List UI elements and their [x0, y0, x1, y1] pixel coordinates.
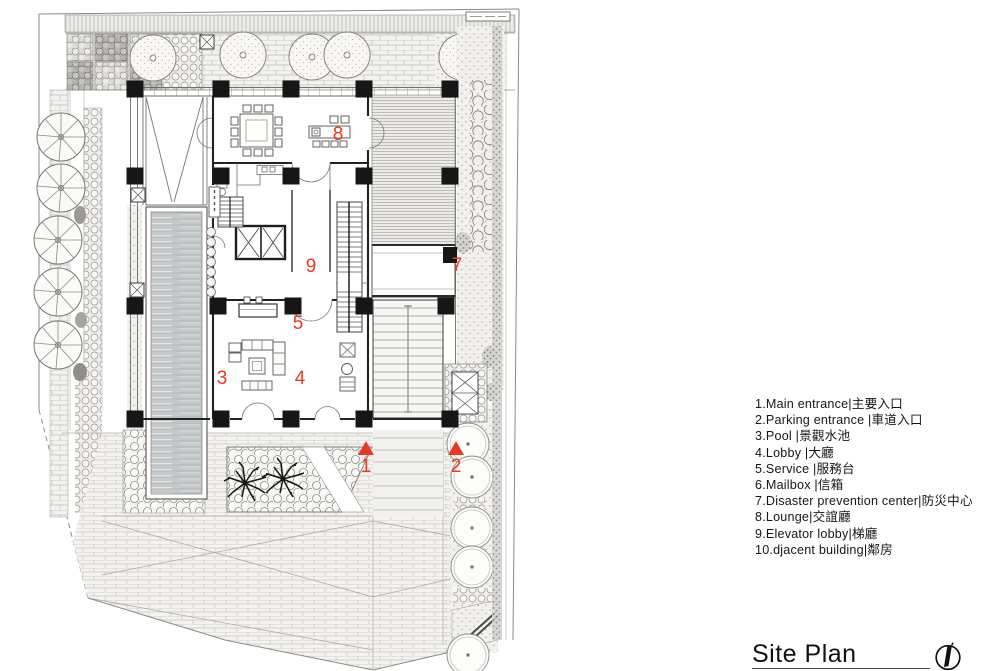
- grate-icon: [200, 35, 214, 49]
- plan-label-2: 2: [451, 456, 462, 477]
- plan-label-8: 8: [333, 124, 344, 145]
- plan-tag-box: [466, 12, 510, 21]
- lobby-furniture: [229, 340, 355, 391]
- grate-icon: [131, 188, 145, 202]
- page-title: Site Plan: [752, 640, 857, 669]
- legend-item-4: 4.Lobby |大廳: [755, 445, 995, 461]
- planting-bed: [224, 447, 372, 512]
- vertical-tag-box: [209, 187, 220, 217]
- legend-item-3: 3.Pool |景觀水池: [755, 428, 995, 444]
- ramp-v: [143, 97, 207, 205]
- plan-label-1: 1: [361, 456, 372, 477]
- legend-item-7: 7.Disaster prevention center|防災中心: [755, 493, 995, 509]
- legend-item-10: 10.djacent building|鄰房: [755, 542, 995, 558]
- plaza: [62, 405, 499, 671]
- plan-label-4: 4: [295, 368, 306, 389]
- top-garden: [65, 12, 515, 90]
- island-set: [309, 116, 350, 147]
- legend-item-5: 5.Service |服務台: [755, 461, 995, 477]
- plan-label-3: 3: [217, 368, 228, 389]
- planter-pots: [207, 228, 216, 297]
- legend-item-9: 9.Elevator lobby|梯廳: [755, 526, 995, 542]
- dining-set: [231, 105, 282, 156]
- north-arrow-icon: [931, 640, 965, 671]
- pool: [146, 207, 207, 499]
- legend-item-1: 1.Main entrance|主要入口: [755, 396, 995, 412]
- site-plan-drawing: 1 2 3 4 5 7 8 9: [0, 0, 1000, 671]
- elevators: [236, 226, 285, 259]
- legend: 1.Main entrance|主要入口 2.Parking entrance …: [755, 396, 995, 558]
- plan-label-9: 9: [306, 256, 317, 277]
- legend-item-2: 2.Parking entrance |車道入口: [755, 412, 995, 428]
- legend-item-8: 8.Lounge|交誼廳: [755, 509, 995, 525]
- site-plan-page: 1 2 3 4 5 7 8 9 1.Main entrance|主要入口 2.P…: [0, 0, 1000, 671]
- stair-a: [218, 197, 243, 227]
- grate-icon: [130, 283, 144, 297]
- plan-label-5: 5: [293, 313, 304, 334]
- legend-item-6: 6.Mailbox |信箱: [755, 477, 995, 493]
- car-ramp: [373, 300, 443, 418]
- title-underline: [752, 668, 930, 669]
- plan-label-7: 7: [452, 255, 463, 276]
